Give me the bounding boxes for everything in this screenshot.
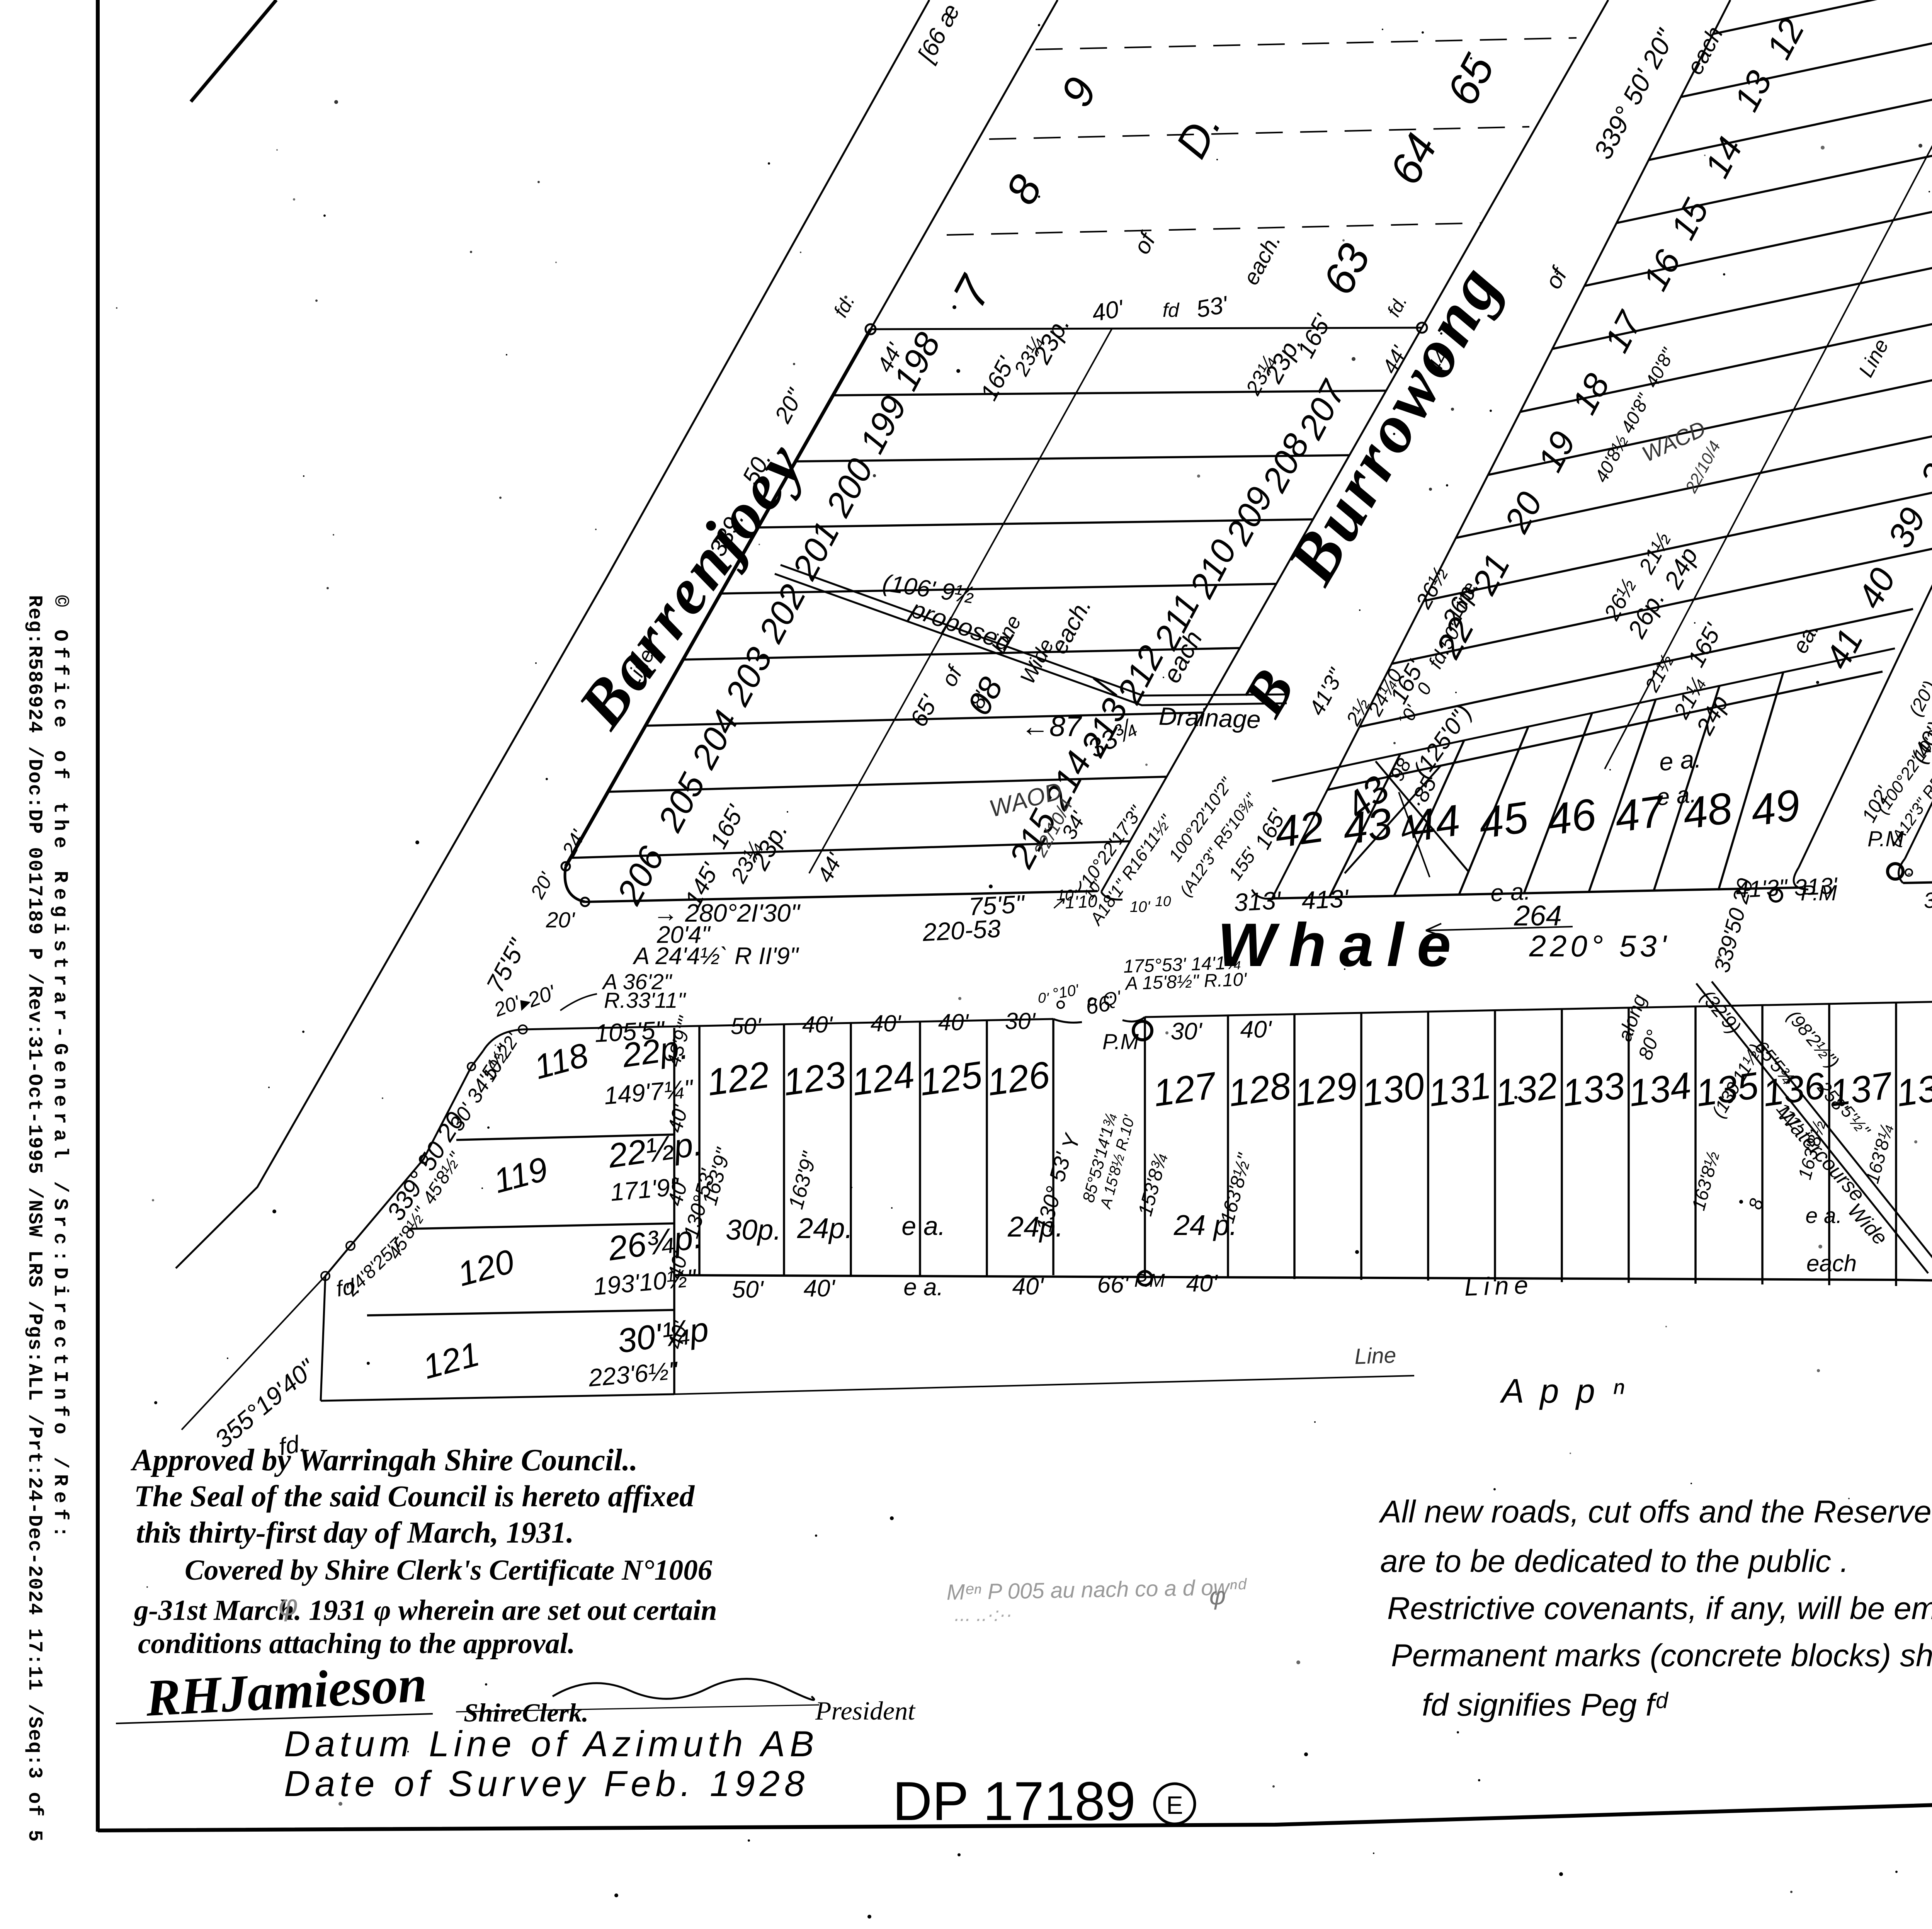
svg-text:e a.: e a. xyxy=(1655,781,1697,811)
svg-text:conditions attaching to the ap: conditions attaching to the approval. xyxy=(138,1628,575,1660)
svg-text:Whale: Whale xyxy=(1218,910,1464,979)
svg-text:30': 30' xyxy=(1005,1008,1036,1034)
svg-text:125: 125 xyxy=(917,1053,985,1104)
svg-text:130: 130 xyxy=(1359,1064,1427,1114)
svg-text:50': 50' xyxy=(732,1276,764,1303)
svg-text:fd.: fd. xyxy=(334,1273,363,1301)
svg-text:each: each xyxy=(1806,1250,1857,1276)
svg-text:Reg:R586924 /Doc:DP 0017189 P: Reg:R586924 /Doc:DP 0017189 P /Rev:31-Oc… xyxy=(23,595,45,1842)
svg-text:127: 127 xyxy=(1151,1064,1219,1114)
svg-text:220-53: 220-53 xyxy=(922,914,1002,947)
svg-text:Covered by Shire Clerk's Certi: Covered by Shire Clerk's Certificate N°1… xyxy=(185,1554,713,1586)
svg-text:128: 128 xyxy=(1226,1064,1293,1114)
svg-text:... ..·:··: ... ..·:·· xyxy=(954,1603,1012,1625)
svg-text:A 24'4½` R II'9": A 24'4½` R II'9" xyxy=(632,943,799,970)
svg-text:132: 132 xyxy=(1493,1064,1560,1114)
svg-text:P.M: P.M xyxy=(1801,881,1837,905)
svg-text:Line: Line xyxy=(1354,1343,1396,1369)
svg-text:122: 122 xyxy=(704,1053,772,1104)
svg-text:P.M: P.M xyxy=(1102,1029,1139,1054)
svg-text:134: 134 xyxy=(1626,1064,1694,1114)
svg-text:30p.: 30p. xyxy=(726,1214,781,1246)
svg-text:10': 10' xyxy=(1130,898,1150,915)
svg-text:50': 50' xyxy=(731,1013,762,1039)
svg-text:105'5": 105'5" xyxy=(594,1016,666,1047)
svg-text:30': 30' xyxy=(1171,1018,1203,1045)
svg-text:Date of Survey Feb. 1928: Date of Survey Feb. 1928 xyxy=(284,1763,809,1804)
svg-text:ShireClerk.: ShireClerk. xyxy=(464,1698,588,1727)
svg-text:All new roads, cut offs and t: All new roads, cut offs and the Reserve … xyxy=(1378,1494,1932,1529)
svg-text:Approved by Warringah Shire Co: Approved by Warringah Shire Council.. xyxy=(130,1443,638,1477)
svg-text:40': 40' xyxy=(1090,295,1126,327)
svg-text:Permanent marks (concrete blo: Permanent marks (concrete blocks) shown … xyxy=(1391,1638,1932,1673)
svg-text:fd signifies Peg fᵈ: fd signifies Peg fᵈ xyxy=(1422,1687,1669,1723)
svg-text:40': 40' xyxy=(804,1275,836,1302)
svg-text:129: 129 xyxy=(1292,1064,1360,1114)
svg-text:DP 17189: DP 17189 xyxy=(893,1771,1136,1832)
svg-text:© Office of the Registrar-Gene: © Office of the Registrar-General /Src:D… xyxy=(49,595,71,1543)
svg-text:A p p ⁿ: A p p ⁿ xyxy=(1500,1372,1629,1410)
svg-text:40': 40' xyxy=(1186,1270,1218,1297)
svg-text:↗1'10: ↗1'10 xyxy=(1050,891,1098,913)
svg-text:66': 66' xyxy=(1097,1271,1129,1298)
svg-text:53': 53' xyxy=(1194,291,1231,323)
svg-text:220° 53': 220° 53' xyxy=(1529,929,1670,963)
svg-text:20': 20' xyxy=(546,908,575,932)
svg-text:President: President xyxy=(815,1696,916,1725)
svg-text:e a.: e a. xyxy=(901,1211,945,1241)
svg-text:are to be dedicated to the: are to be dedicated to the public . xyxy=(1380,1544,1849,1579)
svg-text:Mᵉⁿ P 005 au nach co a d o: Mᵉⁿ P 005 au nach co a d owⁿᵈ xyxy=(946,1575,1247,1605)
svg-text:Restrictive covenants, if an: Restrictive covenants, if any, will be e… xyxy=(1387,1591,1932,1626)
svg-text:40': 40' xyxy=(1012,1273,1044,1300)
svg-text:Drainage: Drainage xyxy=(1158,702,1261,733)
svg-text:E: E xyxy=(1166,1791,1183,1819)
svg-text:49: 49 xyxy=(1748,780,1803,835)
svg-text:45: 45 xyxy=(1476,793,1531,848)
svg-text:0': 0' xyxy=(1038,990,1049,1006)
svg-text:Datum Line of Azimuth AB: Datum Line of Azimuth AB xyxy=(284,1723,818,1764)
svg-text:126: 126 xyxy=(985,1053,1052,1104)
svg-text:e a.: e a. xyxy=(1658,744,1702,776)
svg-text:30'11¼": 30'11¼" xyxy=(1923,885,1932,913)
svg-text:40': 40' xyxy=(1240,1016,1272,1043)
svg-text:The Seal of the said Council i: The Seal of the said Council is hereto a… xyxy=(134,1479,695,1513)
svg-text:133: 133 xyxy=(1560,1064,1627,1114)
svg-text:Line: Line xyxy=(1464,1271,1534,1301)
svg-text:40': 40' xyxy=(871,1010,902,1036)
svg-text:R.33'11": R.33'11" xyxy=(604,988,686,1013)
svg-text:40': 40' xyxy=(802,1012,833,1038)
svg-text:←87: ←87 xyxy=(1021,710,1082,742)
svg-text:124: 124 xyxy=(849,1053,917,1104)
svg-text:P.M: P.M xyxy=(1867,827,1904,851)
svg-text:138: 138 xyxy=(1894,1064,1932,1114)
svg-text:φ: φ xyxy=(279,1589,298,1622)
svg-text:131: 131 xyxy=(1426,1064,1493,1114)
svg-text:fd: fd xyxy=(1163,299,1180,321)
svg-text:24p.: 24p. xyxy=(797,1212,853,1244)
svg-text:123: 123 xyxy=(781,1053,848,1104)
svg-text:g-31st March. 1931 φ wherein a: g-31st March. 1931 φ wherein are set out… xyxy=(133,1594,717,1626)
svg-text:46: 46 xyxy=(1544,789,1599,845)
svg-text:40': 40' xyxy=(938,1009,969,1035)
svg-text:A 15'8½" R.10': A 15'8½" R.10' xyxy=(1124,969,1248,994)
svg-text:10: 10 xyxy=(1155,893,1171,909)
svg-text:φ: φ xyxy=(1209,1582,1226,1610)
svg-text:e a.: e a. xyxy=(903,1274,943,1301)
svg-text:e a.: e a. xyxy=(1805,1203,1842,1228)
svg-text:this thirty-first day of Mar: this thirty-first day of March, 1931. xyxy=(136,1516,574,1549)
